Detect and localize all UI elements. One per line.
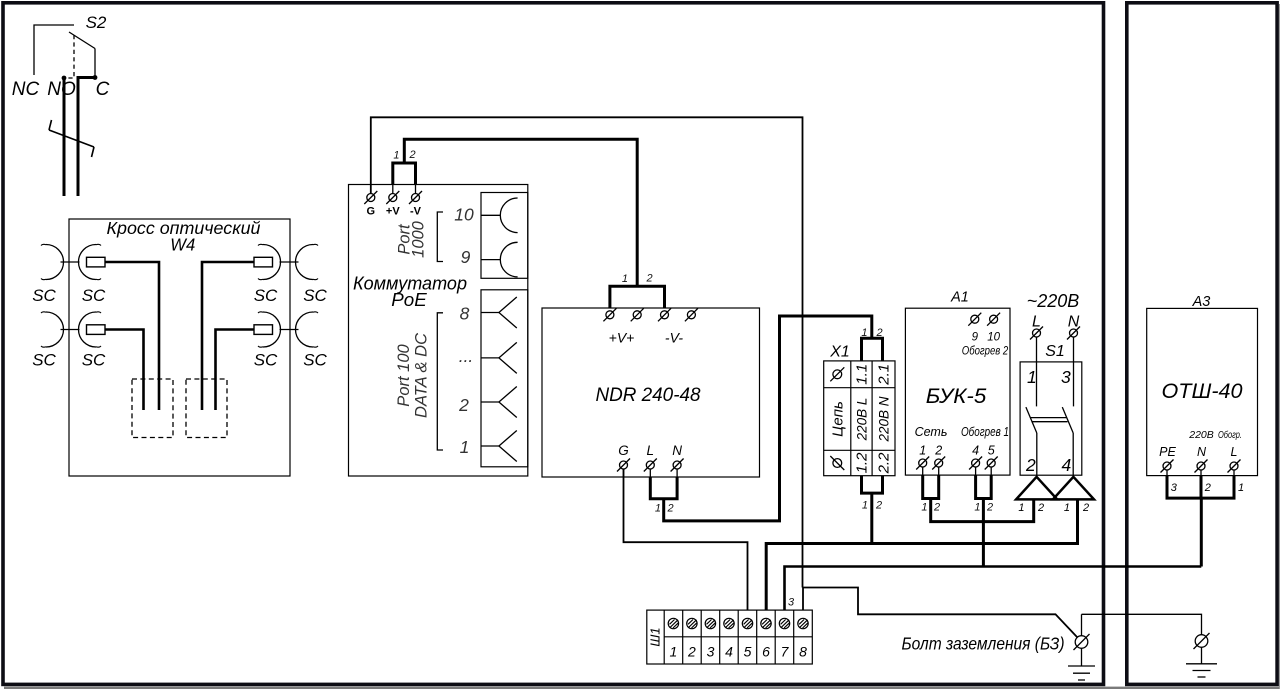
svg-text:SC: SC <box>82 351 106 370</box>
svg-text:4: 4 <box>972 444 979 458</box>
svg-text:БУК-5: БУК-5 <box>926 385 987 408</box>
svg-text:2: 2 <box>934 444 942 458</box>
svg-text:L: L <box>647 443 655 458</box>
svg-text:1: 1 <box>862 500 868 512</box>
svg-text:+V+: +V+ <box>609 330 635 346</box>
svg-text:A3: A3 <box>1192 294 1211 310</box>
svg-text:3: 3 <box>1171 482 1178 494</box>
svg-text:10: 10 <box>987 332 1000 344</box>
svg-text:Port 100: Port 100 <box>395 343 413 406</box>
svg-text:1: 1 <box>622 273 628 285</box>
svg-text:1: 1 <box>921 502 927 514</box>
svg-text:220В L: 220В L <box>855 398 870 442</box>
svg-text:Обогрев 2: Обогрев 2 <box>962 346 1009 358</box>
svg-text:SC: SC <box>32 286 56 305</box>
svg-text:3: 3 <box>707 644 715 660</box>
svg-text:+V: +V <box>386 206 400 218</box>
svg-text:G: G <box>367 206 376 218</box>
svg-text:Сеть: Сеть <box>915 425 948 439</box>
svg-text:~220В: ~220В <box>1027 291 1080 311</box>
svg-text:9: 9 <box>972 332 979 344</box>
svg-text:N: N <box>672 443 682 458</box>
svg-text:PoE: PoE <box>391 290 428 310</box>
svg-text:7: 7 <box>781 644 790 660</box>
svg-text:Болт заземления (БЗ): Болт заземления (БЗ) <box>902 634 1065 654</box>
svg-text:1.1: 1.1 <box>854 364 871 385</box>
svg-text:L: L <box>1231 445 1238 459</box>
svg-text:4: 4 <box>725 644 733 660</box>
svg-text:2: 2 <box>876 327 883 339</box>
svg-text:1: 1 <box>974 502 980 514</box>
svg-text:9: 9 <box>461 247 471 267</box>
svg-text:1: 1 <box>1238 482 1244 494</box>
svg-text:1: 1 <box>460 437 470 457</box>
svg-text:2: 2 <box>646 273 653 285</box>
svg-text:1: 1 <box>393 150 399 162</box>
svg-text:10: 10 <box>454 205 474 225</box>
svg-text:SC: SC <box>254 351 278 370</box>
svg-text:1: 1 <box>919 444 926 458</box>
svg-text:DATA & DC: DATA & DC <box>413 333 431 418</box>
svg-text:2: 2 <box>409 149 416 161</box>
svg-text:2: 2 <box>458 395 469 415</box>
svg-text:G: G <box>618 443 629 458</box>
svg-text:2: 2 <box>1204 482 1211 494</box>
svg-text:Ш1: Ш1 <box>648 627 663 646</box>
svg-text:SC: SC <box>32 351 56 370</box>
svg-text:2: 2 <box>687 644 696 660</box>
svg-text:1: 1 <box>655 503 661 515</box>
svg-text:SC: SC <box>82 286 106 305</box>
svg-text:1000: 1000 <box>410 220 428 258</box>
svg-text:PE: PE <box>1159 445 1176 459</box>
svg-text:8: 8 <box>460 304 470 324</box>
svg-text:2.1: 2.1 <box>876 364 893 386</box>
svg-text:W4: W4 <box>170 235 195 255</box>
svg-text:L: L <box>1032 314 1041 331</box>
svg-text:N: N <box>1197 445 1207 459</box>
svg-text:ОТШ-40: ОТШ-40 <box>1162 380 1243 403</box>
svg-text:A1: A1 <box>950 290 969 306</box>
svg-text:...: ... <box>459 346 474 366</box>
svg-text:S1: S1 <box>1045 343 1065 360</box>
svg-text:1: 1 <box>1027 367 1037 387</box>
svg-text:2: 2 <box>667 503 674 515</box>
svg-text:2: 2 <box>1025 455 1036 475</box>
svg-text:X1: X1 <box>829 344 850 361</box>
svg-text:3: 3 <box>788 597 795 609</box>
svg-text:NDR 240-48: NDR 240-48 <box>596 385 701 406</box>
svg-text:2: 2 <box>1037 502 1044 514</box>
svg-text:2: 2 <box>1082 502 1089 514</box>
svg-text:SC: SC <box>303 351 327 370</box>
svg-text:6: 6 <box>762 644 770 660</box>
svg-text:1: 1 <box>861 327 867 339</box>
svg-text:Обогрев 1: Обогрев 1 <box>961 425 1009 439</box>
svg-text:SC: SC <box>303 286 327 305</box>
svg-text:S2: S2 <box>86 13 107 32</box>
svg-text:C: C <box>96 79 110 100</box>
svg-text:-V: -V <box>410 206 422 218</box>
svg-text:2: 2 <box>875 500 882 512</box>
svg-text:2.2: 2.2 <box>876 452 893 475</box>
svg-text:SC: SC <box>254 286 278 305</box>
svg-text:8: 8 <box>799 644 807 660</box>
svg-text:1: 1 <box>670 644 678 660</box>
svg-text:NO: NO <box>47 79 76 100</box>
svg-text:2: 2 <box>986 502 993 514</box>
svg-text:2: 2 <box>933 502 940 514</box>
svg-text:1.2: 1.2 <box>854 452 871 474</box>
svg-text:5: 5 <box>744 644 752 660</box>
svg-text:3: 3 <box>1061 367 1071 387</box>
svg-text:Цепь: Цепь <box>829 401 846 437</box>
svg-text:1: 1 <box>1064 502 1070 514</box>
svg-text:NC: NC <box>12 79 40 100</box>
svg-text:1: 1 <box>1018 502 1024 514</box>
svg-text:Обогр.: Обогр. <box>1218 429 1242 441</box>
svg-text:4: 4 <box>1062 455 1072 475</box>
svg-text:-V-: -V- <box>665 330 683 346</box>
svg-text:5: 5 <box>988 444 995 458</box>
svg-text:220В: 220В <box>1188 429 1214 441</box>
svg-text:220В N: 220В N <box>877 396 892 442</box>
